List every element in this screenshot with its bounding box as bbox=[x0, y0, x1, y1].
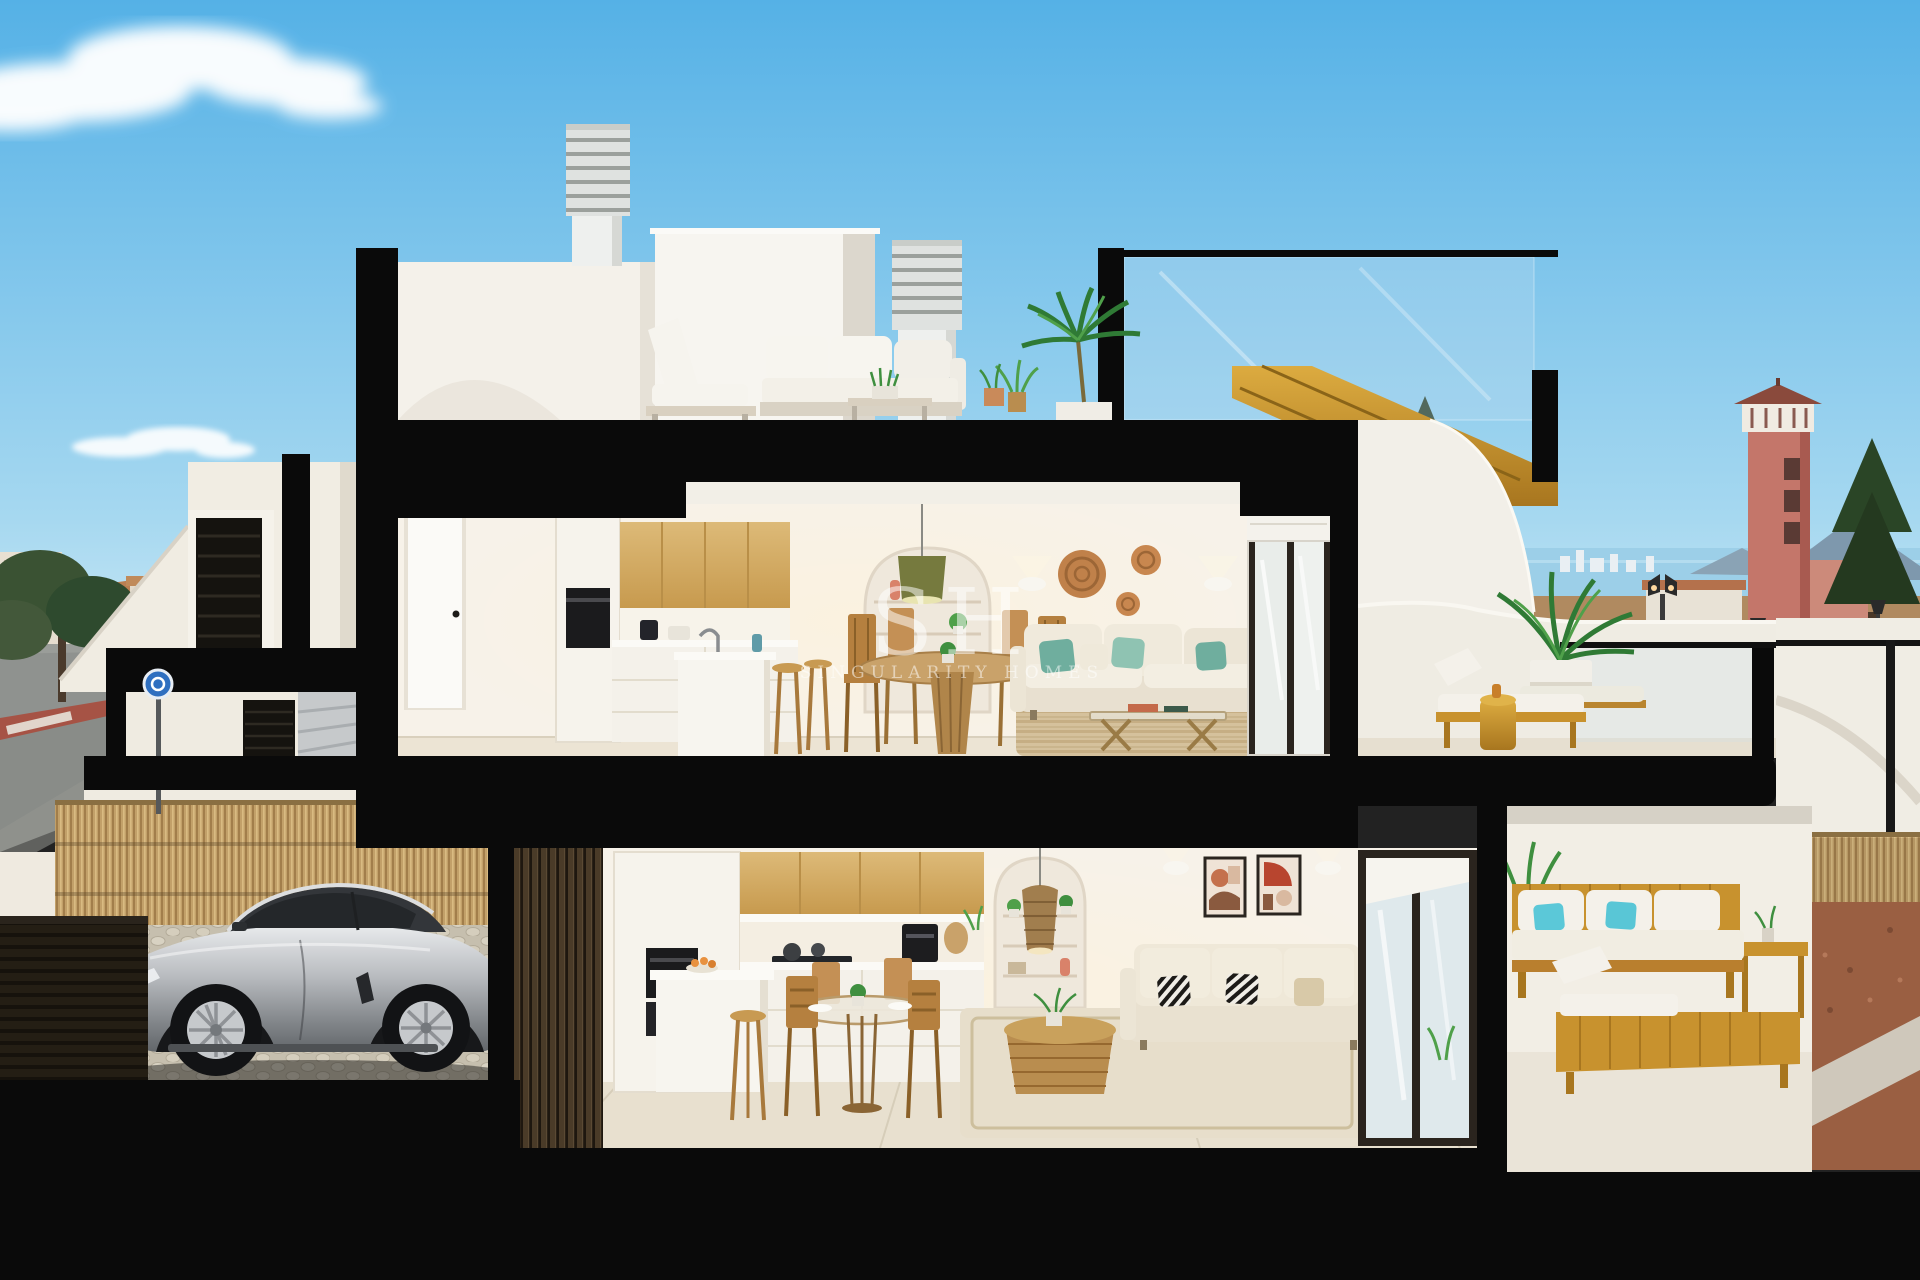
chimney-1 bbox=[566, 124, 630, 266]
sliding-glass-door-ground bbox=[1358, 850, 1477, 1146]
watermark-name: SINGULARITY HOMES bbox=[800, 663, 1104, 683]
kettle bbox=[640, 620, 658, 640]
section-column-terrace bbox=[1330, 420, 1358, 758]
car-rear-wheel bbox=[382, 984, 470, 1072]
section-column-ground-right bbox=[1477, 806, 1507, 1172]
watermark-initials: SH bbox=[870, 569, 1033, 676]
louver-door-upper bbox=[196, 518, 262, 650]
coffee-machine bbox=[902, 924, 938, 962]
section-kitchen-bulkhead bbox=[356, 482, 686, 518]
ground-floor-terrace bbox=[1498, 806, 1812, 1172]
kitchen-island-ground bbox=[650, 957, 774, 1092]
car-front-wheel bbox=[170, 984, 262, 1076]
terrace-floor-ground bbox=[1507, 1052, 1812, 1172]
section-roof-slab bbox=[356, 420, 1358, 482]
stair-section-post bbox=[282, 454, 310, 650]
upper-cabinets-ground bbox=[740, 852, 984, 914]
louver-door-lower bbox=[243, 700, 295, 760]
sliding-glass-door-first-floor bbox=[1247, 514, 1330, 756]
section-terrace-slab bbox=[1358, 756, 1776, 806]
built-in-oven bbox=[566, 588, 610, 648]
sofa-ground-floor bbox=[1120, 944, 1374, 1050]
property-cross-section-render: SH SINGULARITY HOMES bbox=[0, 0, 1920, 1280]
interior-door bbox=[404, 512, 466, 710]
